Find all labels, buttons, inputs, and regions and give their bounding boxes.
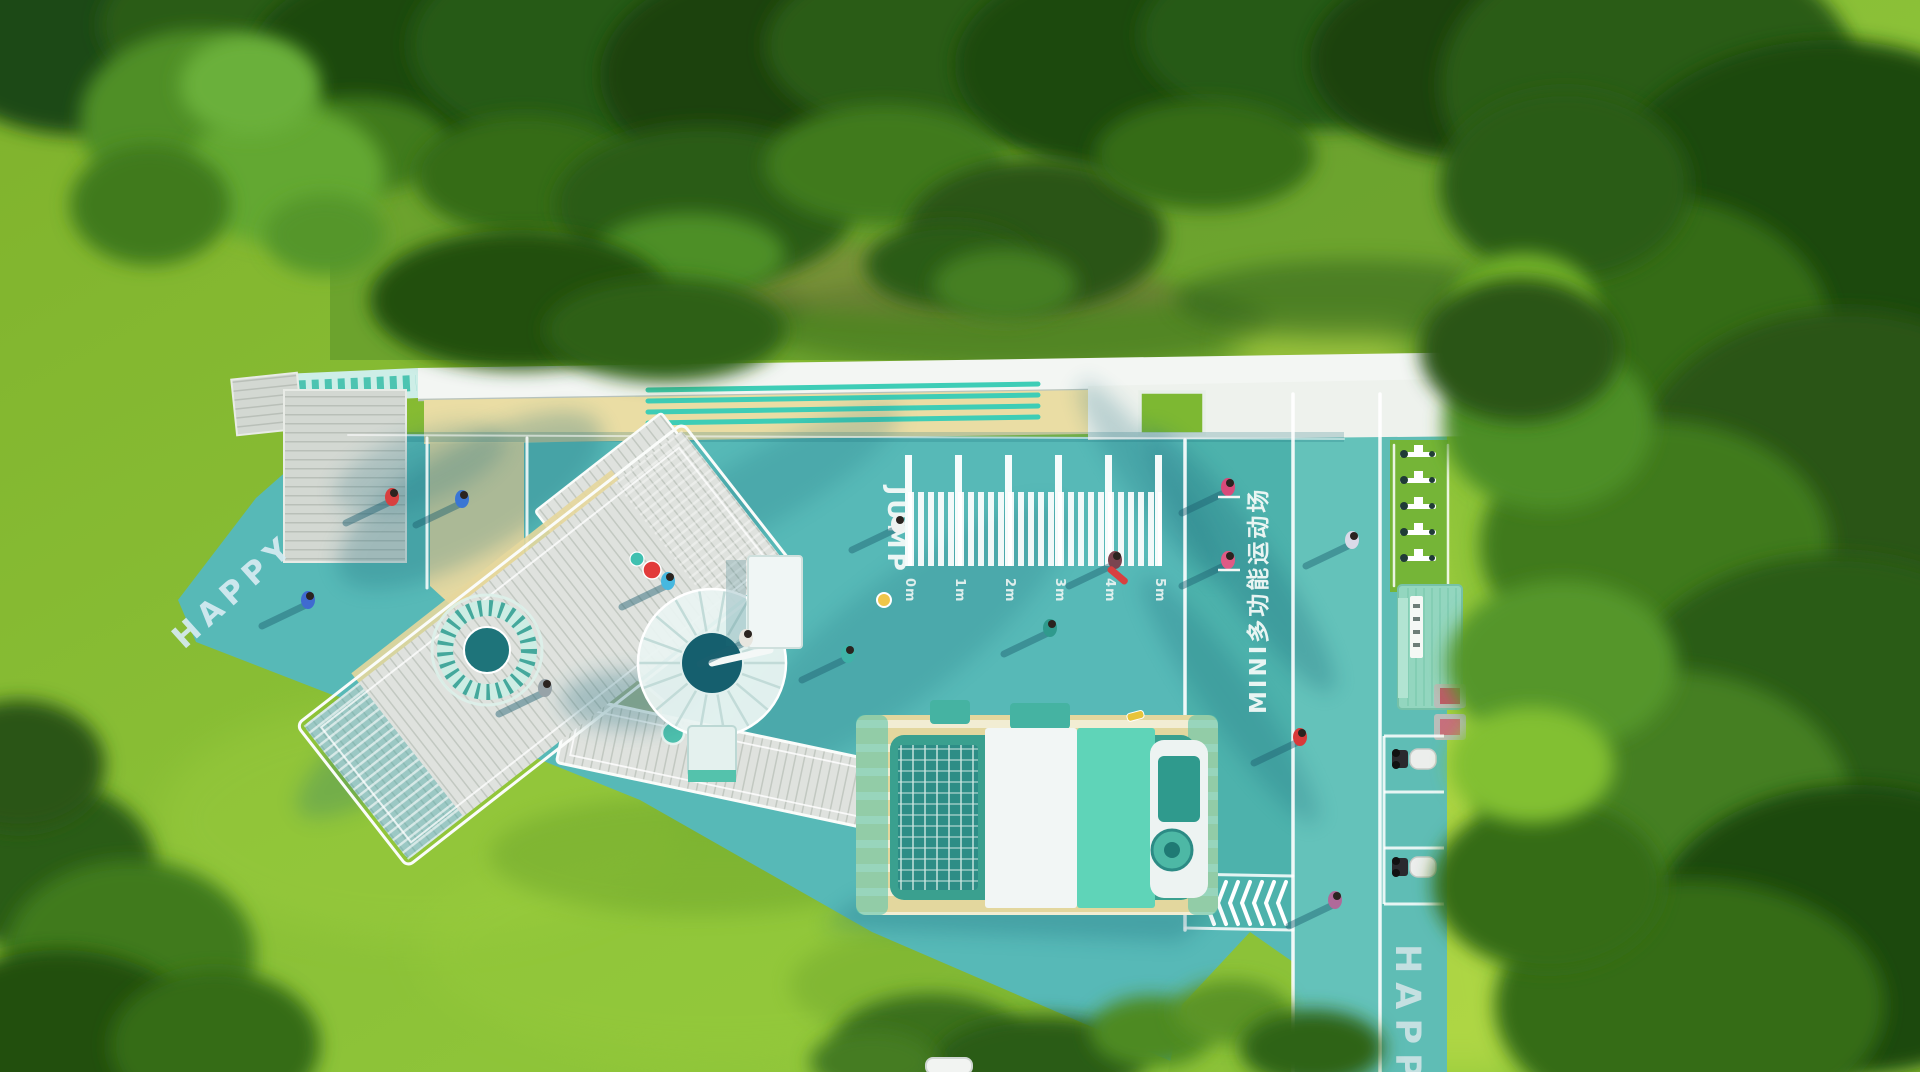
fitness-machine-weight bbox=[1400, 528, 1408, 536]
tree-canopy bbox=[1420, 278, 1620, 422]
fitness-strip bbox=[1390, 440, 1448, 592]
person-head bbox=[896, 516, 904, 524]
fitness-machine-weight bbox=[1400, 502, 1408, 510]
jump-major-tick bbox=[1105, 455, 1112, 566]
person-head bbox=[306, 592, 314, 600]
person-head bbox=[1298, 729, 1306, 737]
right-path bbox=[1293, 436, 1380, 1072]
tree-canopy bbox=[180, 35, 320, 135]
stroller-canopy bbox=[1410, 857, 1436, 877]
fitness-machine-seat bbox=[1414, 549, 1423, 556]
sign-mark bbox=[1413, 617, 1420, 621]
stroller bbox=[1392, 749, 1436, 769]
umbrella-red bbox=[643, 561, 661, 579]
scene-canvas: JUMP 0m 1m 2m 3m 4m 5m MINI多功能运动场 HAPPY … bbox=[0, 0, 1920, 1072]
person-head bbox=[1226, 552, 1234, 560]
truck-play-structure bbox=[820, 700, 1220, 942]
jump-scale-1m: 1m bbox=[952, 578, 967, 603]
person-head bbox=[390, 489, 398, 497]
truck-ladder-deck bbox=[898, 745, 978, 890]
fitness-machine-weight bbox=[1400, 476, 1408, 484]
bottom-edge-object bbox=[926, 1058, 972, 1072]
person-head bbox=[543, 680, 551, 688]
person-head bbox=[666, 573, 674, 581]
person-head bbox=[1048, 620, 1056, 628]
ring-climber bbox=[432, 595, 542, 705]
jump-minor-ticks bbox=[906, 492, 1162, 566]
person-head bbox=[1226, 479, 1234, 487]
tree-canopy bbox=[545, 278, 785, 382]
planter-box bbox=[1140, 392, 1204, 434]
tree-canopy bbox=[1433, 800, 1663, 970]
tree-canopy bbox=[70, 145, 230, 265]
jump-mascot-icon bbox=[877, 593, 891, 607]
jump-major-tick bbox=[1005, 455, 1012, 566]
jump-major-tick bbox=[955, 455, 962, 566]
fitness-machine-weight bbox=[1429, 477, 1435, 483]
tree-canopy bbox=[933, 249, 1077, 321]
stroller-canopy bbox=[1410, 749, 1436, 769]
person-head bbox=[1350, 532, 1358, 540]
fitness-machine-seat bbox=[1414, 471, 1423, 478]
stroller-wheel bbox=[1392, 869, 1400, 877]
sign-mark bbox=[1413, 630, 1420, 634]
happy-walkway-right-label: HAPPY bbox=[1387, 944, 1427, 1072]
fitness-machine-weight bbox=[1400, 554, 1408, 562]
jump-major-tick bbox=[1155, 455, 1162, 566]
fitness-machine-weight bbox=[1429, 503, 1435, 509]
jump-scale-5m: 5m bbox=[1152, 578, 1167, 603]
person-head bbox=[744, 630, 752, 638]
truck-canopy-white bbox=[985, 728, 1077, 908]
stroller-wheel bbox=[1392, 761, 1400, 769]
person-head bbox=[460, 491, 468, 499]
fitness-machine-weight bbox=[1400, 450, 1408, 458]
fitness-machine-weight bbox=[1429, 529, 1435, 535]
slide-exit bbox=[688, 726, 736, 776]
fitness-machine-seat bbox=[1414, 445, 1423, 452]
jump-scale-0m: 0m bbox=[902, 578, 917, 603]
stroller bbox=[1392, 857, 1436, 877]
person-head bbox=[846, 646, 854, 654]
jump-scale-3m: 3m bbox=[1052, 578, 1067, 603]
sign-mark bbox=[1413, 604, 1420, 608]
umbrella-teal bbox=[630, 552, 644, 566]
jump-scale-2m: 2m bbox=[1002, 578, 1017, 603]
sign-mark bbox=[1413, 643, 1420, 647]
person-head bbox=[1333, 892, 1341, 900]
truck-canopy-mint bbox=[1077, 728, 1155, 908]
jump-major-tick bbox=[1055, 455, 1062, 566]
fitness-machine-weight bbox=[1429, 555, 1435, 561]
fitness-machine-weight bbox=[1429, 451, 1435, 457]
person-head bbox=[1113, 552, 1121, 560]
playground-aerial-render: JUMP 0m 1m 2m 3m 4m 5m MINI多功能运动场 HAPPY … bbox=[0, 0, 1920, 1072]
stroller-wheel bbox=[1392, 857, 1400, 865]
jump-scale-4m: 4m bbox=[1102, 578, 1117, 603]
fitness-machine-seat bbox=[1414, 497, 1423, 504]
slide-tower bbox=[748, 556, 802, 648]
court-title: MINI多功能运动场 bbox=[1245, 487, 1272, 714]
fitness-machine-seat bbox=[1414, 523, 1423, 530]
tree-canopy bbox=[1440, 90, 1690, 280]
tree-canopy bbox=[1450, 707, 1614, 823]
stroller-wheel bbox=[1392, 749, 1400, 757]
tree-canopy bbox=[1095, 100, 1315, 210]
tree-canopy bbox=[265, 195, 385, 275]
